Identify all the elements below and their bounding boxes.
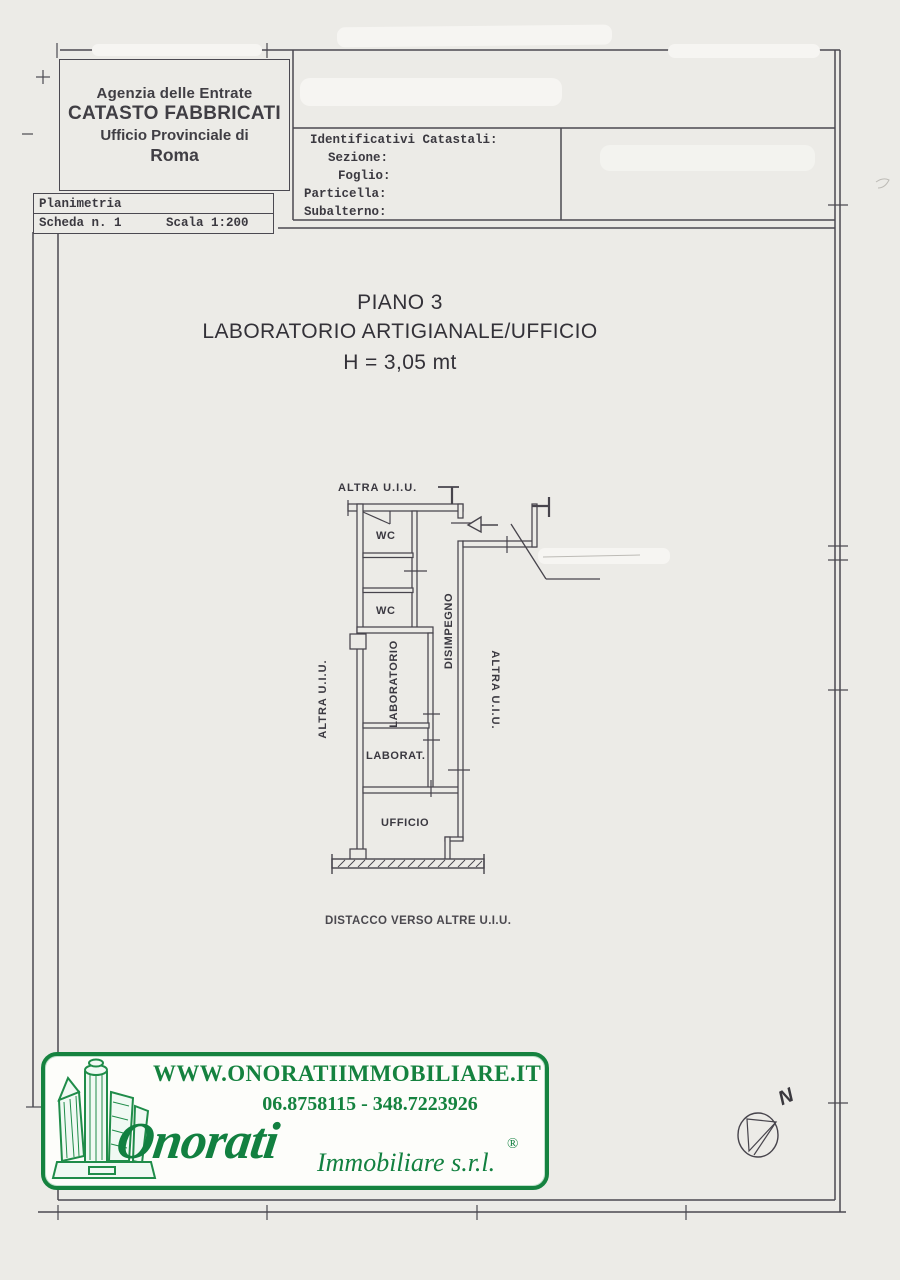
label-wc-1: WC	[376, 530, 396, 542]
scanned-cadastral-document: { "header": { "agency_line1": "Agenzia d…	[0, 0, 900, 1280]
identificativi-title: Identificativi Catastali:	[310, 133, 498, 147]
ceiling-height: H = 3,05 mt	[60, 351, 740, 375]
agency-header-box: Agenzia delle Entrate CATASTO FABBRICATI…	[59, 59, 290, 191]
field-particella: Particella:	[304, 187, 387, 201]
province-name: Roma	[150, 145, 199, 166]
catasto-title: CATASTO FABBRICATI	[68, 103, 281, 125]
label-laboratorio: LABORATORIO	[388, 640, 400, 728]
label-altra-uiu-top: ALTRA U.I.U.	[338, 482, 417, 494]
field-foglio: Foglio:	[338, 169, 391, 183]
office-line: Ufficio Provinciale di	[100, 127, 248, 144]
entrance-arrow-icon	[468, 517, 498, 532]
registered-mark: ®	[507, 1136, 518, 1153]
label-disimpegno: DISIMPEGNO	[443, 591, 455, 671]
field-sezione: Sezione:	[328, 151, 388, 165]
label-laborat: LABORAT.	[366, 750, 426, 762]
label-ufficio: UFFICIO	[381, 817, 429, 829]
agency-stamp: WWW.ONORATIIMMOBILIARE.IT 06.8758115 - 3…	[41, 1052, 549, 1190]
brand-suffix: Immobiliare s.r.l.	[317, 1148, 495, 1178]
planimetria-label: Planimetria	[39, 197, 122, 211]
floor-number: PIANO 3	[60, 291, 740, 315]
planimetria-table: Planimetria Scheda n. 1 Scala 1:200	[33, 193, 274, 234]
website-url: WWW.ONORATIIMMOBILIARE.IT	[153, 1061, 541, 1087]
brand-name: Onorati	[113, 1112, 282, 1171]
distacco-caption: DISTACCO VERSO ALTRE U.I.U.	[325, 915, 511, 927]
sheet-number: Scheda n. 1	[39, 216, 122, 230]
north-compass-icon	[738, 1113, 778, 1157]
scale-value: Scala 1:200	[166, 216, 249, 230]
label-wc-2: WC	[376, 605, 396, 617]
agency-name: Agenzia delle Entrate	[97, 85, 253, 102]
unit-type: LABORATORIO ARTIGIANALE/UFFICIO	[60, 320, 740, 344]
label-altra-uiu-right: ALTRA U.I.U.	[489, 645, 501, 735]
label-altra-uiu-left: ALTRA U.I.U.	[317, 654, 329, 744]
field-subalterno: Subalterno:	[304, 205, 387, 219]
